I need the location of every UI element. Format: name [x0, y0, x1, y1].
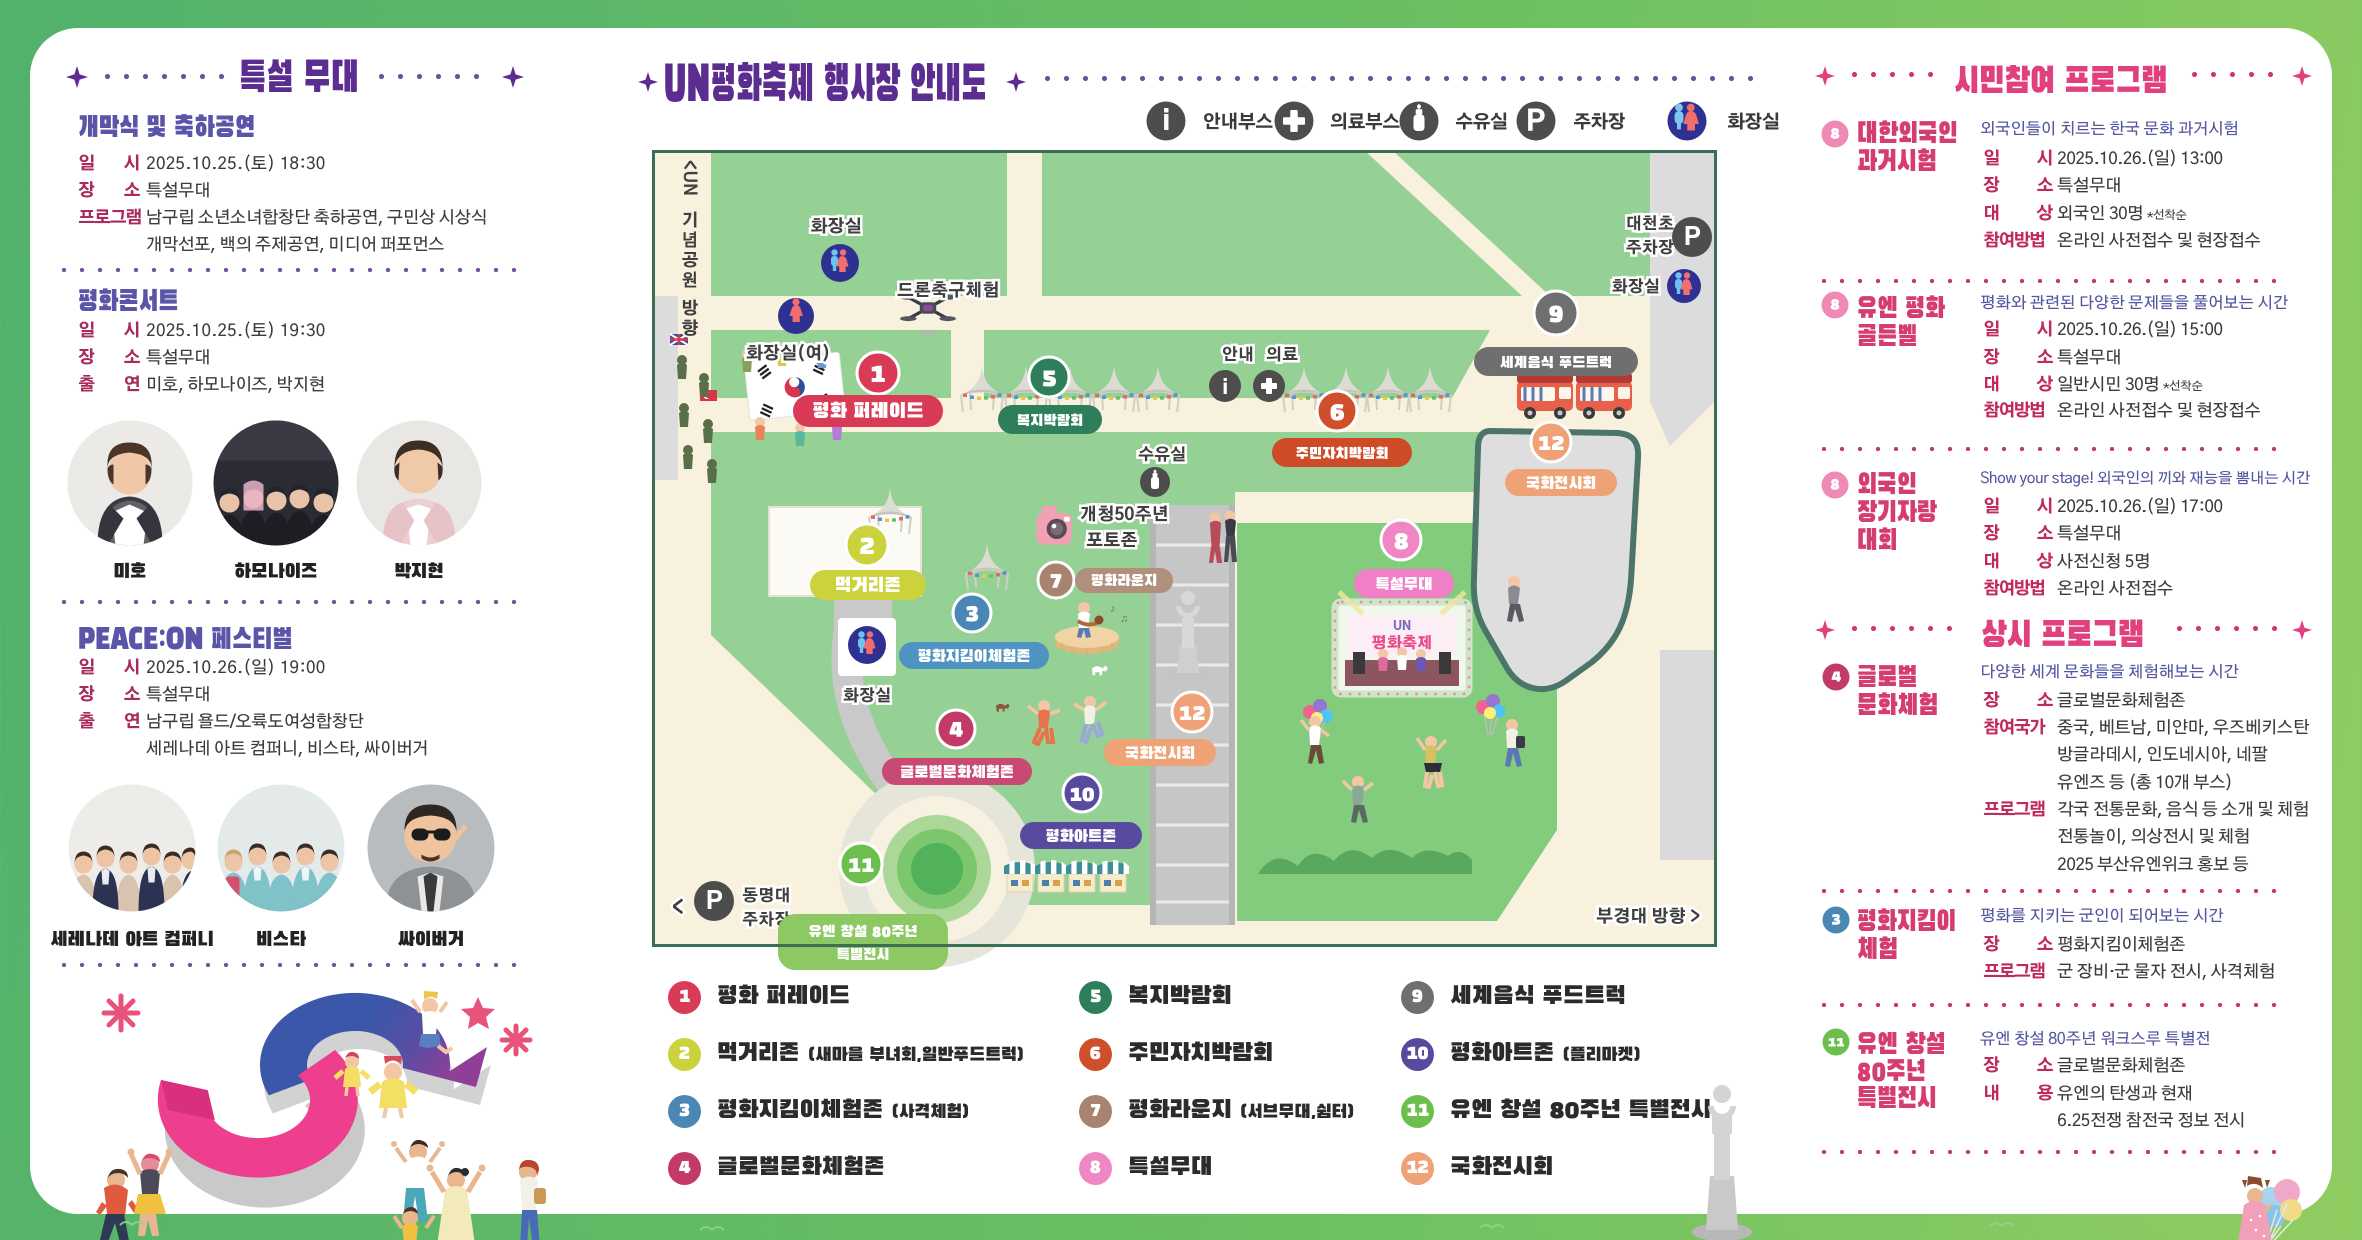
svg-text:12: 12 [1179, 703, 1205, 725]
svg-text:3: 3 [965, 603, 979, 626]
svg-text:안내부스: 안내부스 [1203, 112, 1273, 132]
svg-text:i: i [1222, 378, 1228, 399]
svg-text:향: 향 [681, 319, 698, 338]
svg-text:수유실: 수유실 [1455, 112, 1507, 132]
svg-text:방: 방 [681, 299, 698, 318]
svg-text:주차장: 주차장 [1626, 239, 1674, 257]
svg-text:<UN: <UN [680, 160, 697, 196]
svg-text:부경대 방향 >: 부경대 방향 > [1596, 907, 1700, 926]
svg-text:수유실: 수유실 [1138, 446, 1186, 464]
svg-text:복지박람회: 복지박람회 [1017, 413, 1083, 430]
svg-text:UN: UN [1393, 621, 1411, 633]
svg-text:특별전시: 특별전시 [837, 947, 890, 964]
svg-text:12: 12 [1538, 433, 1564, 455]
svg-text:♪: ♪ [1110, 604, 1116, 615]
svg-text:9: 9 [1548, 302, 1564, 328]
svg-text:안내: 안내 [1222, 346, 1254, 364]
svg-text:먹거리존: 먹거리존 [835, 576, 901, 597]
svg-text:1: 1 [870, 362, 886, 388]
svg-text:동명대: 동명대 [742, 887, 790, 905]
svg-text:화장실: 화장실 [1612, 278, 1660, 296]
svg-text:P: P [706, 889, 723, 914]
svg-text:화장실: 화장실 [1727, 112, 1779, 132]
svg-text:10: 10 [1069, 785, 1094, 806]
svg-text:개청50주년: 개청50주년 [1080, 505, 1169, 524]
svg-text:념: 념 [682, 230, 698, 250]
svg-text:포토존: 포토존 [1086, 532, 1137, 550]
svg-text:국화전시회: 국화전시회 [1125, 745, 1195, 763]
svg-text:공: 공 [681, 251, 698, 270]
svg-text:평화 퍼레이드: 평화 퍼레이드 [812, 401, 924, 423]
svg-text:의료: 의료 [1266, 346, 1298, 364]
svg-text:주차장: 주차장 [1573, 112, 1626, 132]
svg-text:7: 7 [1049, 571, 1062, 593]
svg-text:4: 4 [949, 719, 963, 742]
svg-text:기: 기 [681, 211, 698, 230]
svg-text:대천초: 대천초 [1626, 215, 1674, 233]
svg-text:6: 6 [1329, 401, 1344, 426]
svg-text:P: P [1526, 109, 1546, 137]
svg-text:P: P [1684, 225, 1701, 250]
svg-text:화장실: 화장실 [810, 217, 861, 236]
svg-text:평화라운지: 평화라운지 [1091, 573, 1157, 590]
svg-text:<: < [672, 898, 684, 919]
svg-text:특설무대: 특설무대 [1375, 576, 1432, 594]
svg-text:평화지킴이체험존: 평화지킴이체험존 [917, 648, 1030, 666]
svg-text:의료부스: 의료부스 [1330, 112, 1400, 132]
svg-text:주민자치박람회: 주민자치박람회 [1296, 446, 1389, 463]
svg-text:♫: ♫ [1120, 614, 1128, 625]
svg-text:11: 11 [848, 855, 874, 877]
svg-text:i: i [1162, 109, 1170, 136]
svg-text:8: 8 [1393, 530, 1408, 555]
svg-text:드론축구체험: 드론축구체험 [897, 281, 1000, 300]
svg-text:화장실(여): 화장실(여) [746, 343, 831, 363]
svg-text:2: 2 [859, 534, 875, 560]
svg-text:원: 원 [682, 271, 698, 290]
svg-text:세계음식 푸드트럭: 세계음식 푸드트럭 [1500, 355, 1612, 372]
svg-text:화장실: 화장실 [843, 687, 891, 705]
svg-text:국화전시회: 국화전시회 [1526, 475, 1596, 493]
svg-text:5: 5 [1041, 367, 1056, 392]
svg-text:평화아트존: 평화아트존 [1046, 828, 1117, 846]
svg-text:글로벌문화체험존: 글로벌문화체험존 [900, 764, 1014, 782]
svg-text:유엔 창설 80주년: 유엔 창설 80주년 [808, 924, 917, 941]
